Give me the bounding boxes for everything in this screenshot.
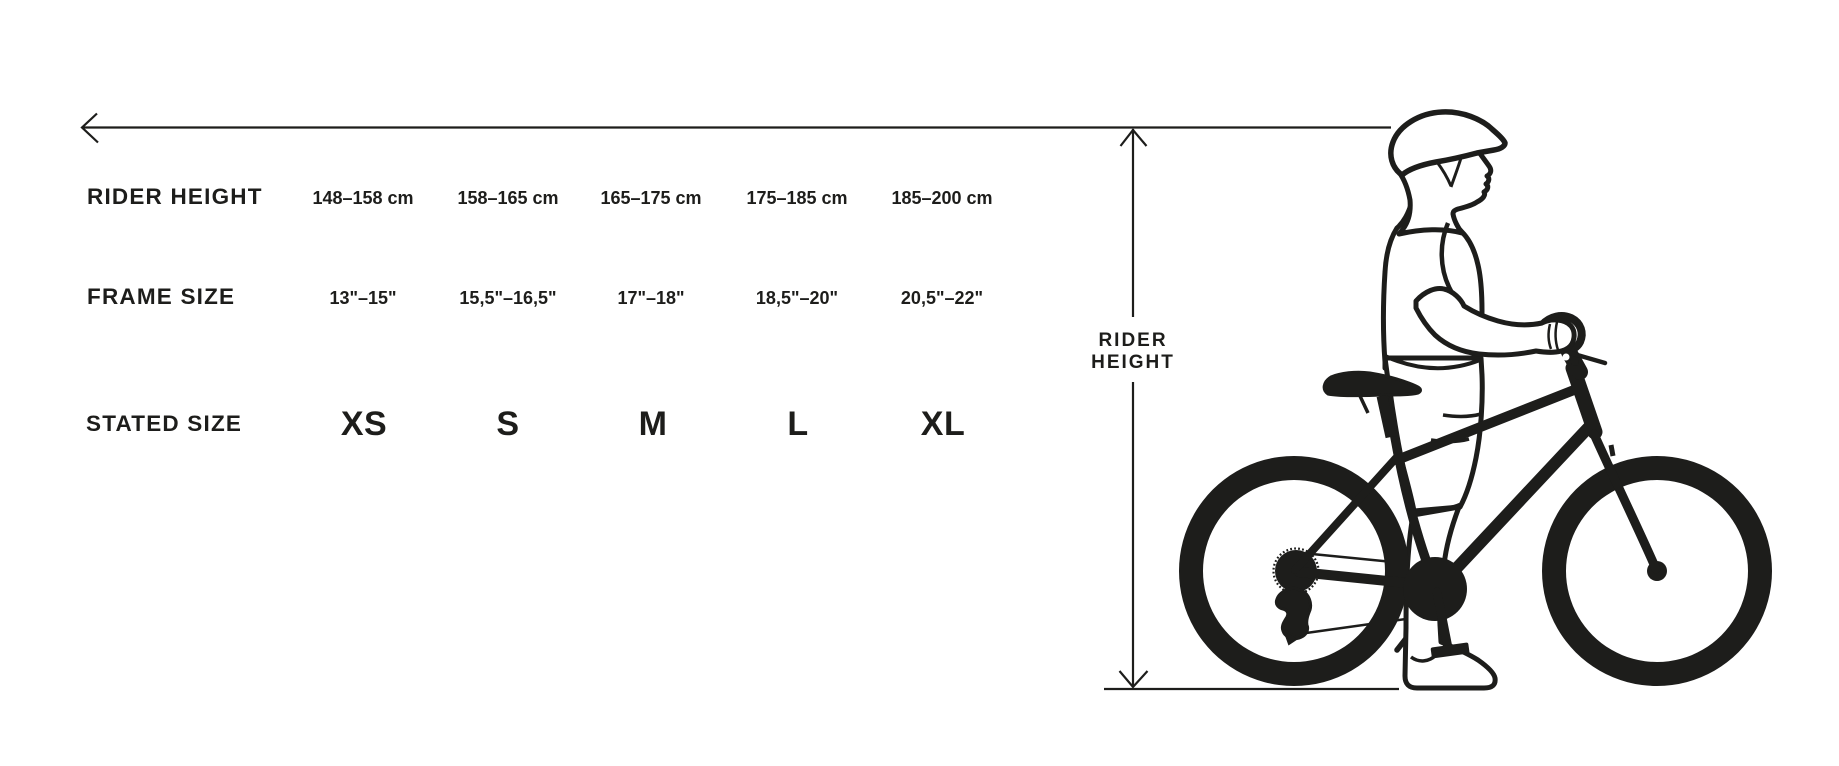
svg-text:M: M <box>639 405 668 443</box>
svg-text:FRAME SIZE: FRAME SIZE <box>87 284 235 309</box>
svg-text:13"–15": 13"–15" <box>329 288 396 308</box>
svg-text:175–185 cm: 175–185 cm <box>746 188 847 208</box>
svg-text:XL: XL <box>921 405 965 443</box>
svg-text:RIDER: RIDER <box>1098 330 1167 351</box>
svg-text:STATED SIZE: STATED SIZE <box>86 411 242 436</box>
svg-text:HEIGHT: HEIGHT <box>1091 352 1175 373</box>
svg-text:15,5"–16,5": 15,5"–16,5" <box>459 288 556 308</box>
svg-text:RIDER HEIGHT: RIDER HEIGHT <box>87 184 263 209</box>
svg-text:18,5"–20": 18,5"–20" <box>756 288 838 308</box>
svg-text:165–175 cm: 165–175 cm <box>600 188 701 208</box>
svg-text:S: S <box>496 405 519 443</box>
svg-text:XS: XS <box>341 405 387 443</box>
svg-text:148–158 cm: 148–158 cm <box>312 188 413 208</box>
svg-text:20,5"–22": 20,5"–22" <box>901 288 983 308</box>
svg-text:17"–18": 17"–18" <box>617 288 684 308</box>
svg-text:L: L <box>787 405 808 443</box>
svg-text:158–165 cm: 158–165 cm <box>457 188 558 208</box>
svg-text:185–200 cm: 185–200 cm <box>891 188 992 208</box>
